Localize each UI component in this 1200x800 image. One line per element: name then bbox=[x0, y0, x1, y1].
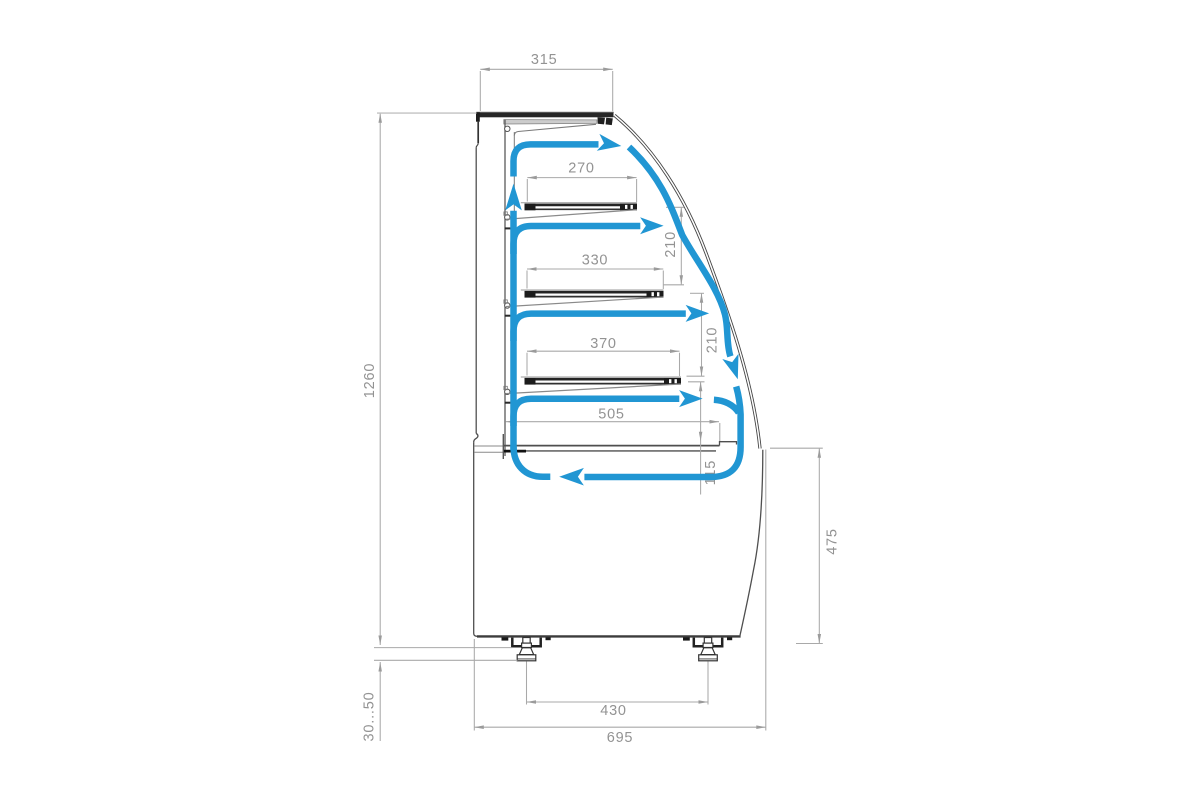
svg-text:30...50: 30...50 bbox=[362, 692, 378, 742]
svg-text:1260: 1260 bbox=[362, 363, 378, 398]
svg-text:505: 505 bbox=[598, 407, 625, 423]
svg-text:695: 695 bbox=[607, 730, 634, 746]
svg-text:475: 475 bbox=[825, 528, 841, 555]
svg-text:210: 210 bbox=[663, 231, 679, 258]
svg-text:210: 210 bbox=[705, 327, 721, 354]
svg-text:270: 270 bbox=[568, 161, 595, 177]
svg-text:370: 370 bbox=[590, 336, 617, 352]
svg-text:115: 115 bbox=[703, 460, 719, 486]
svg-text:330: 330 bbox=[582, 252, 609, 268]
svg-text:315: 315 bbox=[531, 52, 558, 68]
svg-text:430: 430 bbox=[600, 703, 627, 719]
